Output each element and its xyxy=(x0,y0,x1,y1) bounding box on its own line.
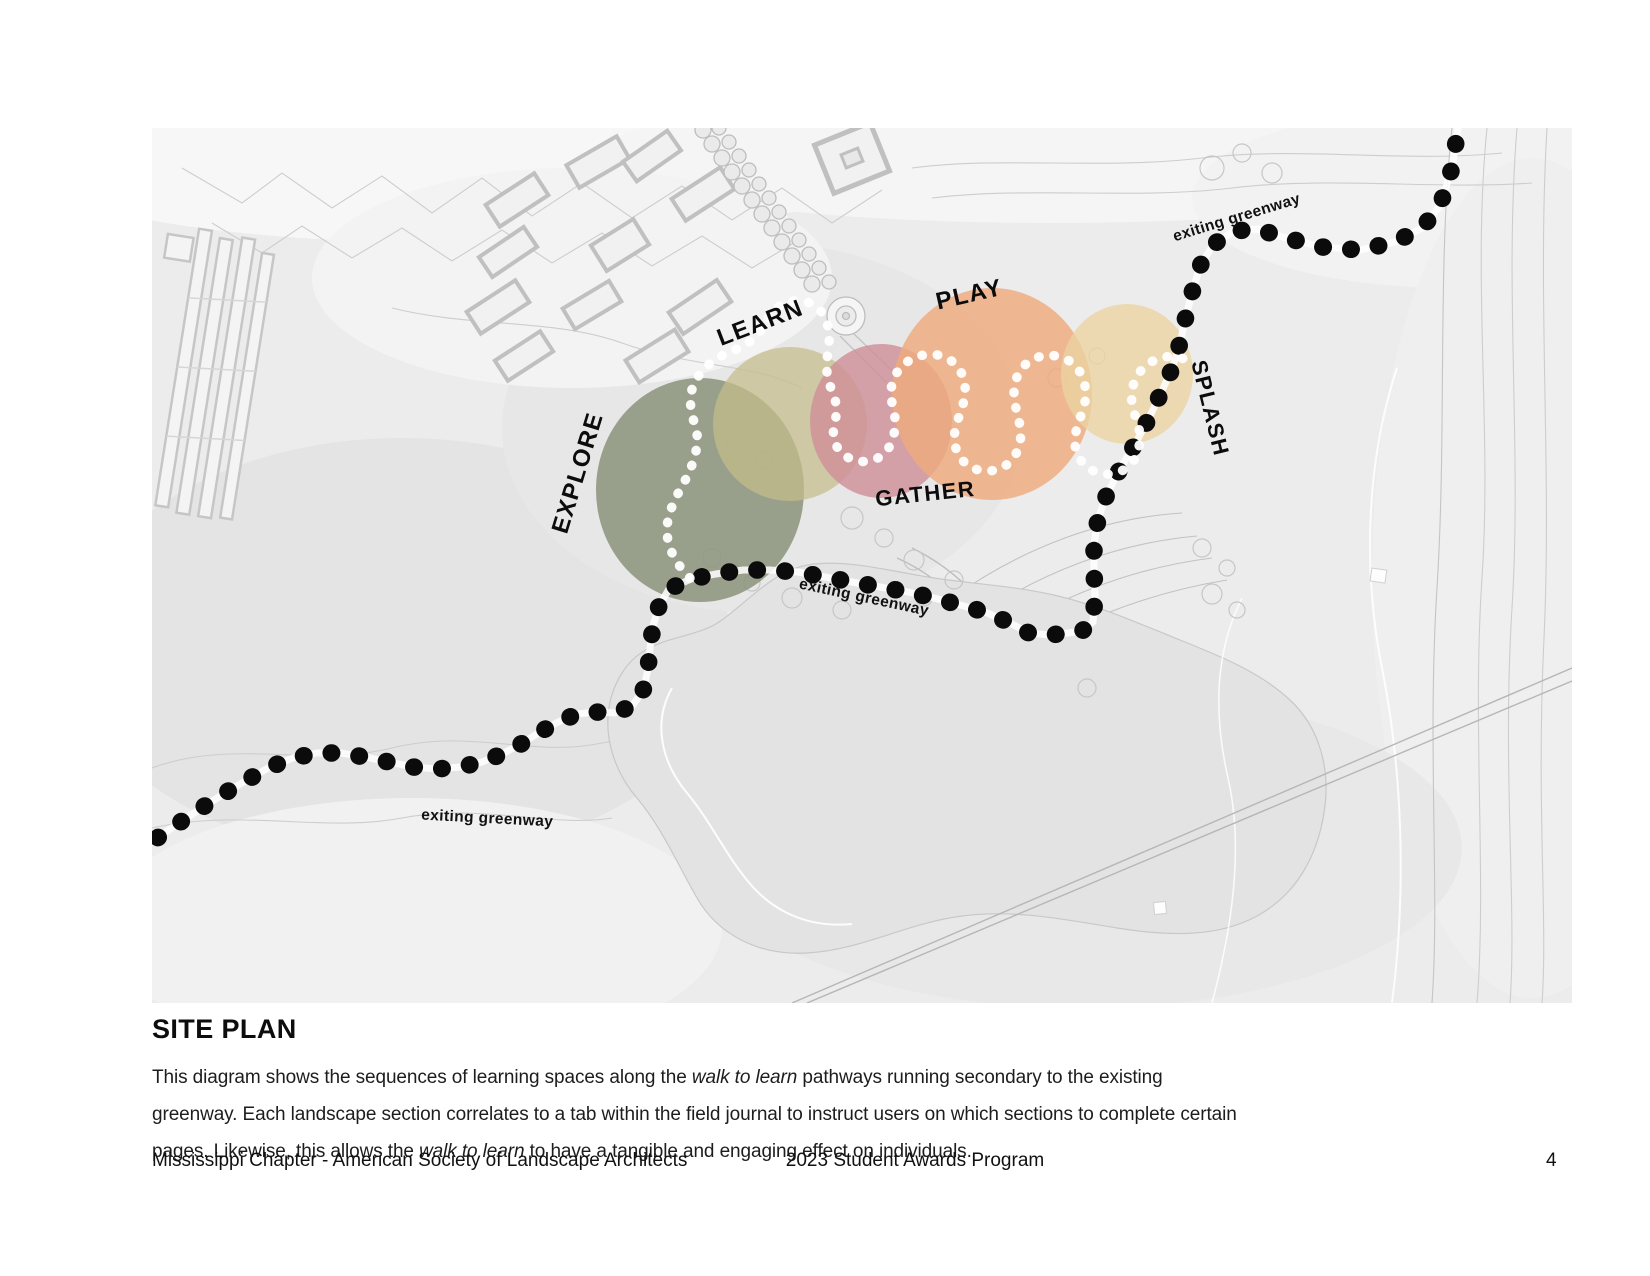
page-title: SITE PLAN xyxy=(152,1014,1412,1045)
body-text: pathways running secondary to the existi… xyxy=(797,1067,1162,1088)
page-footer: Mississippi Chapter - American Society o… xyxy=(0,1150,1650,1180)
caption-block: SITE PLAN This diagram shows the sequenc… xyxy=(152,1014,1412,1170)
footer-organization: Mississippi Chapter - American Society o… xyxy=(152,1150,687,1172)
footer-page-number: 4 xyxy=(1546,1150,1557,1172)
body-text-line-2: greenway. Each landscape section correla… xyxy=(152,1096,1412,1133)
site-plan-map: EXPLORE LEARN GATHER PLAY SPLASH exiting… xyxy=(152,128,1572,1003)
body-text-italic: walk to learn xyxy=(692,1067,797,1088)
body-text-line-1: This diagram shows the sequences of lear… xyxy=(152,1059,1412,1096)
footer-program: 2023 Student Awards Program xyxy=(786,1150,1044,1172)
site-plan-svg: EXPLORE LEARN GATHER PLAY SPLASH exiting… xyxy=(152,128,1572,1003)
body-text: This diagram shows the sequences of lear… xyxy=(152,1067,692,1088)
